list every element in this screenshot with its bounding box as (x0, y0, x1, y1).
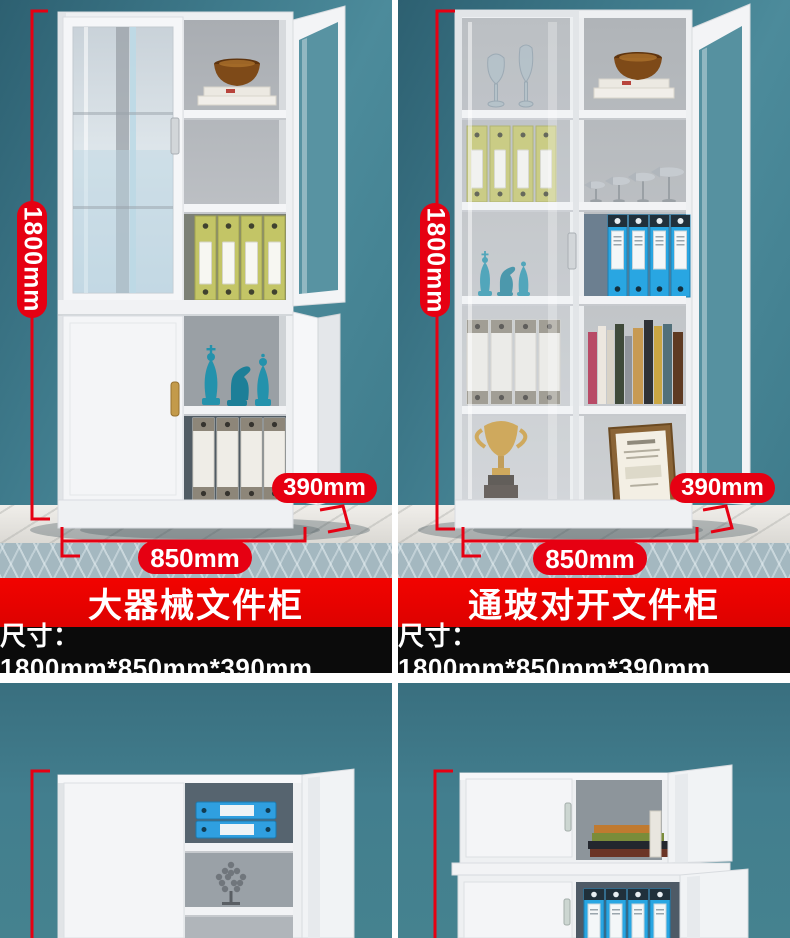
photo-panel-bottom-right (398, 683, 790, 938)
lower-cabinet (452, 863, 748, 938)
photo-panel-top-right: 1800mm 850mm 390mm (398, 0, 790, 578)
height-dimension-label: 1800mm (17, 201, 47, 318)
size-bar-right: 尺寸：1800mm*850mm*390mm (398, 627, 790, 673)
photo-panel-bottom-left (0, 683, 392, 938)
width-dimension-label: 850mm (533, 542, 647, 575)
cabinet-illustration-bottom-right (398, 683, 790, 938)
width-dimension-label: 850mm (138, 541, 252, 574)
cabinet-illustration-bottom-left (0, 683, 392, 938)
certificate-frame (609, 424, 677, 510)
cabinet (58, 769, 354, 938)
dimension-lines (32, 771, 50, 938)
depth-dimension-label: 390mm (272, 473, 377, 503)
books-row (588, 320, 683, 404)
size-bar-left: 尺寸：1800mm*850mm*390mm (0, 627, 392, 673)
cabinet (418, 4, 758, 543)
height-dimension-text: 1800mm (423, 207, 448, 313)
product-detail-image: 1800mm 850mm 390mm (0, 0, 790, 938)
upper-cabinet (460, 765, 732, 863)
cabinet (30, 6, 370, 543)
dimension-lines (435, 771, 453, 938)
photo-panel-top-left: 1800mm 850mm 390mm (0, 0, 392, 578)
height-dimension-text: 1800mm (20, 206, 45, 312)
depth-dimension-label: 390mm (670, 473, 775, 503)
height-dimension-label: 1800mm (420, 203, 450, 317)
